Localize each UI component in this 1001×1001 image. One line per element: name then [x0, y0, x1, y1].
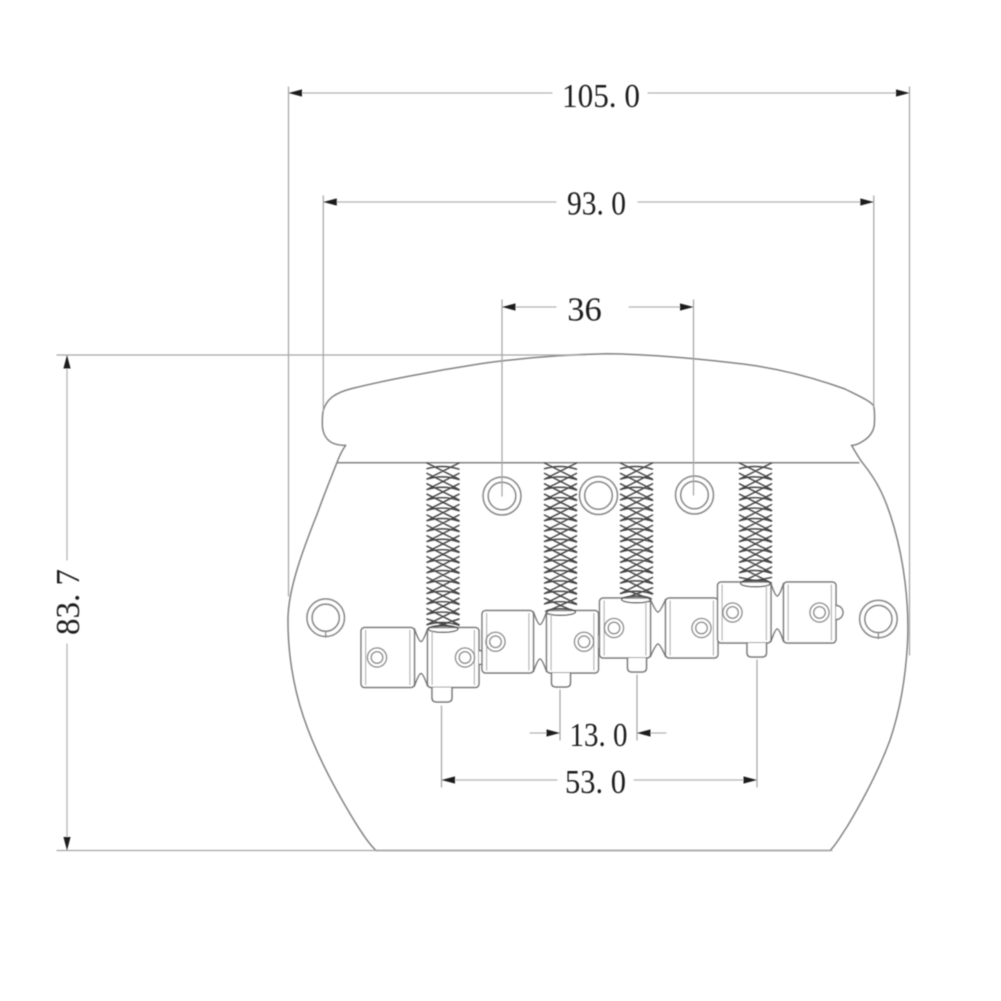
svg-text:36: 36: [567, 292, 602, 329]
svg-text:13. 0: 13. 0: [570, 717, 628, 754]
svg-text:83. 7: 83. 7: [50, 569, 87, 635]
svg-text:53. 0: 53. 0: [565, 764, 626, 801]
svg-text:93. 0: 93. 0: [567, 186, 626, 223]
svg-text:105. 0: 105. 0: [562, 78, 640, 115]
